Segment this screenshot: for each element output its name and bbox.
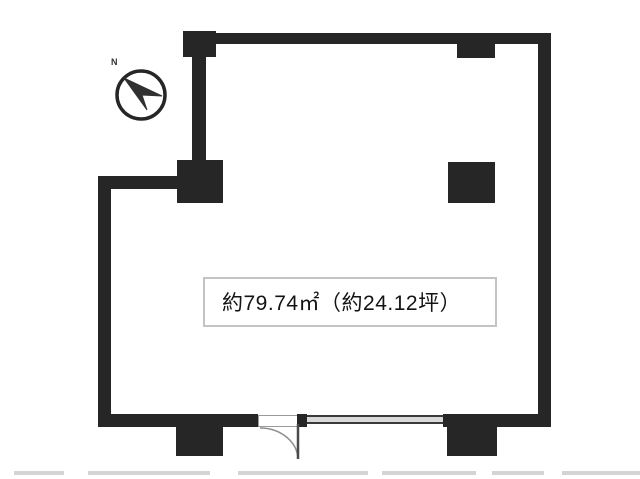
- scan-artifact-segment: [492, 471, 544, 475]
- door-threshold: [258, 415, 299, 427]
- scan-artifact-segment: [88, 471, 210, 475]
- wall-left: [98, 176, 111, 427]
- pillar-mid-right: [448, 162, 495, 203]
- wall-top: [183, 33, 551, 44]
- window-strip: [305, 415, 443, 424]
- compass-circle: [117, 71, 165, 119]
- north-arrow-icon: [124, 78, 162, 110]
- scan-artifact-segment: [562, 471, 640, 475]
- pillar-upper-left: [177, 160, 223, 203]
- area-label-text: 約79.74㎡（約24.12坪）: [222, 287, 461, 317]
- floorplan-canvas: N 約79.74㎡（約24.12坪）: [0, 0, 640, 479]
- pillar-top-right: [457, 38, 495, 58]
- compass-icon: N: [111, 57, 165, 119]
- wall-entry-vertical: [192, 45, 206, 162]
- door-swing: [260, 424, 298, 459]
- scan-artifact-segment: [14, 471, 64, 475]
- door-swing-arc: [260, 428, 298, 459]
- door-hinge-post: [297, 414, 307, 427]
- scan-artifact-segment: [238, 471, 368, 475]
- wall-bottom-left: [98, 414, 258, 427]
- scan-artifact-segment: [382, 471, 476, 475]
- pillar-bottom-right: [447, 427, 497, 456]
- compass-north-label: N: [111, 57, 118, 67]
- wall-right: [538, 33, 551, 427]
- wall-bottom-right: [443, 414, 551, 427]
- pillar-bottom-left: [176, 427, 223, 456]
- area-label-box: 約79.74㎡（約24.12坪）: [203, 277, 497, 327]
